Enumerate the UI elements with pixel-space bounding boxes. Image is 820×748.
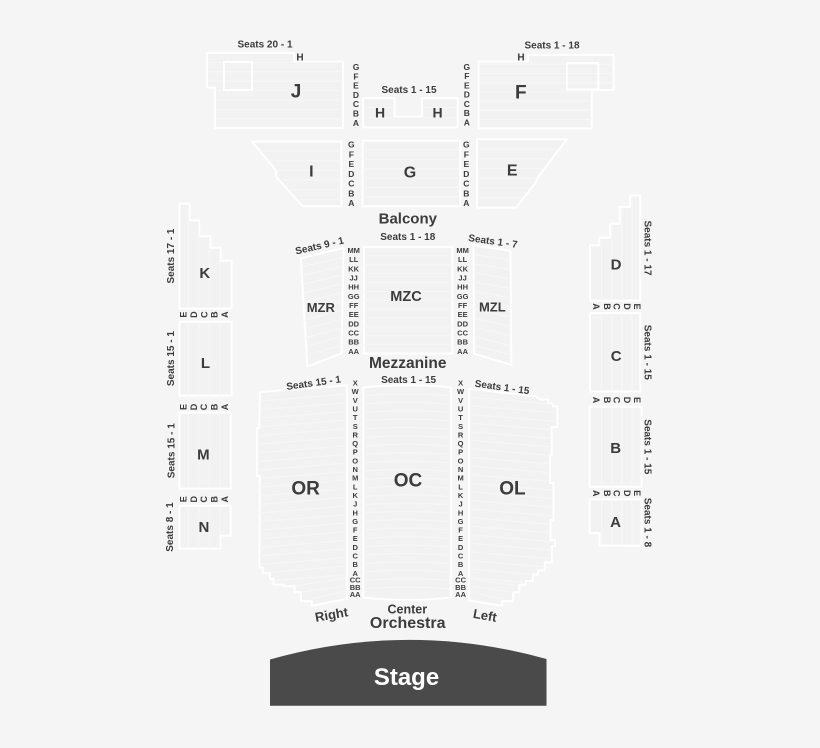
svg-text:C: C: [199, 311, 209, 318]
svg-text:GG: GG: [348, 292, 360, 301]
svg-text:HH: HH: [457, 283, 468, 292]
svg-text:F: F: [458, 526, 463, 535]
svg-text:Stage: Stage: [374, 664, 439, 691]
svg-text:AA: AA: [350, 590, 361, 599]
svg-text:EE: EE: [349, 310, 359, 319]
svg-text:F: F: [464, 149, 469, 159]
svg-text:D: D: [189, 495, 199, 502]
svg-text:F: F: [349, 149, 354, 159]
svg-text:Q: Q: [458, 439, 464, 448]
svg-text:A: A: [464, 117, 470, 127]
svg-text:B: B: [210, 311, 220, 318]
svg-text:A: A: [353, 118, 359, 128]
svg-text:B: B: [602, 490, 612, 497]
svg-text:L: L: [201, 355, 210, 372]
svg-text:T: T: [353, 413, 358, 422]
svg-text:MM: MM: [456, 246, 469, 255]
svg-text:EE: EE: [458, 310, 468, 319]
svg-text:D: D: [622, 303, 632, 310]
svg-text:E: E: [348, 159, 354, 169]
svg-text:D: D: [189, 403, 199, 410]
svg-text:D: D: [348, 169, 354, 179]
svg-text:H: H: [517, 53, 524, 64]
svg-text:A: A: [220, 495, 230, 502]
svg-text:H: H: [433, 104, 443, 120]
svg-text:I: I: [309, 164, 313, 181]
svg-text:A: A: [610, 514, 621, 531]
svg-text:P: P: [353, 448, 358, 457]
svg-text:L: L: [353, 482, 358, 491]
svg-text:MZR: MZR: [307, 300, 336, 315]
svg-text:KK: KK: [457, 264, 468, 273]
svg-text:C: C: [463, 179, 469, 189]
svg-text:C: C: [348, 179, 354, 189]
svg-text:B: B: [602, 303, 612, 310]
svg-text:CC: CC: [348, 328, 359, 337]
svg-text:E: E: [458, 534, 463, 543]
svg-text:FF: FF: [349, 301, 359, 310]
svg-text:U: U: [352, 404, 357, 413]
svg-text:A: A: [220, 311, 230, 318]
svg-text:Seats 1 - 18: Seats 1 - 18: [524, 41, 579, 52]
svg-text:C: C: [612, 490, 622, 497]
svg-text:Seats 8 - 1: Seats 8 - 1: [165, 502, 176, 552]
svg-text:C: C: [199, 403, 209, 410]
svg-text:B: B: [610, 440, 621, 457]
svg-text:Q: Q: [352, 439, 358, 448]
svg-text:E: E: [178, 496, 188, 502]
svg-text:O: O: [458, 456, 464, 465]
svg-text:OR: OR: [291, 479, 320, 500]
svg-text:A: A: [463, 198, 469, 208]
svg-text:J: J: [291, 82, 302, 103]
svg-text:H: H: [296, 53, 303, 64]
svg-text:AA: AA: [457, 347, 468, 356]
svg-text:W: W: [457, 387, 465, 396]
svg-text:B: B: [602, 397, 612, 404]
svg-text:B: B: [210, 495, 220, 502]
svg-text:JJ: JJ: [458, 274, 466, 283]
svg-text:Seats 1 - 15: Seats 1 - 15: [381, 85, 436, 96]
svg-text:Seats 15 - 1: Seats 15 - 1: [166, 423, 177, 478]
svg-text:E: E: [507, 163, 518, 180]
svg-text:V: V: [353, 396, 358, 405]
svg-text:G: G: [404, 165, 416, 182]
svg-text:BB: BB: [457, 338, 468, 347]
svg-text:E: E: [353, 534, 358, 543]
svg-text:D: D: [458, 543, 464, 552]
svg-text:C: C: [199, 495, 209, 502]
svg-text:C: C: [352, 552, 358, 561]
svg-text:M: M: [352, 474, 358, 483]
svg-text:C: C: [458, 552, 464, 561]
svg-text:Balcony: Balcony: [379, 211, 438, 228]
svg-text:K: K: [199, 265, 210, 282]
svg-text:D: D: [463, 169, 469, 179]
svg-text:J: J: [353, 500, 357, 509]
svg-text:S: S: [458, 422, 463, 431]
svg-text:B: B: [352, 560, 358, 569]
svg-text:D: D: [189, 311, 199, 318]
svg-text:G: G: [458, 517, 464, 526]
svg-text:MM: MM: [347, 246, 360, 255]
svg-text:H: H: [458, 508, 463, 517]
svg-text:B: B: [210, 403, 220, 410]
svg-text:B: B: [463, 188, 469, 198]
svg-text:AA: AA: [348, 347, 359, 356]
svg-text:Seats 17 - 1: Seats 17 - 1: [166, 228, 177, 283]
svg-text:X: X: [458, 379, 463, 388]
svg-text:AA: AA: [455, 590, 466, 599]
svg-text:B: B: [348, 188, 354, 198]
svg-text:K: K: [458, 491, 464, 500]
svg-text:G: G: [348, 140, 355, 150]
svg-text:F: F: [353, 526, 358, 535]
svg-text:M: M: [197, 447, 210, 464]
svg-text:G: G: [352, 517, 358, 526]
svg-text:C: C: [611, 348, 622, 365]
svg-text:C: C: [612, 397, 622, 404]
svg-text:N: N: [458, 465, 463, 474]
svg-text:C: C: [612, 303, 622, 310]
svg-text:Seats 1 - 17: Seats 1 - 17: [641, 220, 652, 275]
svg-text:S: S: [353, 422, 358, 431]
svg-text:G: G: [463, 140, 470, 150]
svg-text:DD: DD: [348, 319, 359, 328]
svg-text:E: E: [632, 490, 642, 496]
svg-text:MZL: MZL: [479, 300, 506, 315]
svg-text:KK: KK: [348, 264, 359, 273]
svg-text:GG: GG: [457, 292, 469, 301]
svg-text:W: W: [352, 387, 360, 396]
svg-text:H: H: [375, 104, 385, 120]
svg-text:E: E: [632, 303, 642, 309]
svg-text:OL: OL: [499, 479, 526, 500]
svg-text:Seats 1 - 18: Seats 1 - 18: [380, 232, 435, 243]
svg-text:A: A: [591, 490, 601, 497]
svg-text:E: E: [632, 397, 642, 403]
svg-text:OC: OC: [394, 471, 423, 492]
svg-text:N: N: [198, 519, 209, 536]
svg-text:Seats 1 - 15: Seats 1 - 15: [641, 325, 652, 380]
svg-text:E: E: [463, 159, 469, 169]
svg-text:M: M: [457, 474, 463, 483]
svg-text:D: D: [352, 543, 358, 552]
svg-text:O: O: [352, 456, 358, 465]
svg-text:FF: FF: [458, 301, 468, 310]
svg-text:Mezzanine: Mezzanine: [369, 355, 447, 372]
svg-text:LL: LL: [349, 255, 359, 264]
svg-text:Orchestra: Orchestra: [370, 615, 446, 632]
svg-text:T: T: [458, 413, 463, 422]
svg-text:Seats 15 - 1: Seats 15 - 1: [166, 331, 177, 386]
svg-text:D: D: [622, 490, 632, 497]
svg-text:D: D: [622, 397, 632, 404]
svg-text:A: A: [591, 397, 601, 404]
svg-text:E: E: [178, 312, 188, 318]
svg-text:R: R: [458, 430, 464, 439]
svg-text:Seats 1 - 15: Seats 1 - 15: [381, 375, 436, 386]
svg-text:A: A: [591, 303, 601, 310]
svg-text:A: A: [220, 403, 230, 410]
svg-text:JJ: JJ: [350, 274, 358, 283]
svg-text:E: E: [178, 404, 188, 410]
svg-text:Seats 20 - 1: Seats 20 - 1: [237, 40, 292, 51]
svg-text:CC: CC: [457, 328, 468, 337]
svg-text:N: N: [352, 465, 357, 474]
svg-text:Seats 1 - 8: Seats 1 - 8: [642, 498, 653, 548]
svg-text:H: H: [352, 508, 357, 517]
svg-text:Seats 1 - 15: Seats 1 - 15: [642, 419, 653, 474]
svg-text:DD: DD: [457, 319, 468, 328]
svg-text:P: P: [458, 448, 463, 457]
svg-text:BB: BB: [348, 338, 359, 347]
svg-text:K: K: [352, 491, 358, 500]
svg-text:V: V: [458, 396, 463, 405]
svg-text:U: U: [458, 404, 463, 413]
svg-text:LL: LL: [458, 255, 468, 264]
svg-text:J: J: [459, 500, 463, 509]
svg-text:X: X: [353, 379, 358, 388]
svg-text:L: L: [458, 482, 463, 491]
svg-text:HH: HH: [348, 283, 359, 292]
svg-text:A: A: [348, 198, 354, 208]
svg-text:B: B: [458, 560, 464, 569]
svg-text:D: D: [611, 256, 622, 273]
svg-text:F: F: [515, 83, 527, 104]
svg-text:R: R: [352, 430, 358, 439]
svg-text:MZC: MZC: [390, 289, 422, 305]
